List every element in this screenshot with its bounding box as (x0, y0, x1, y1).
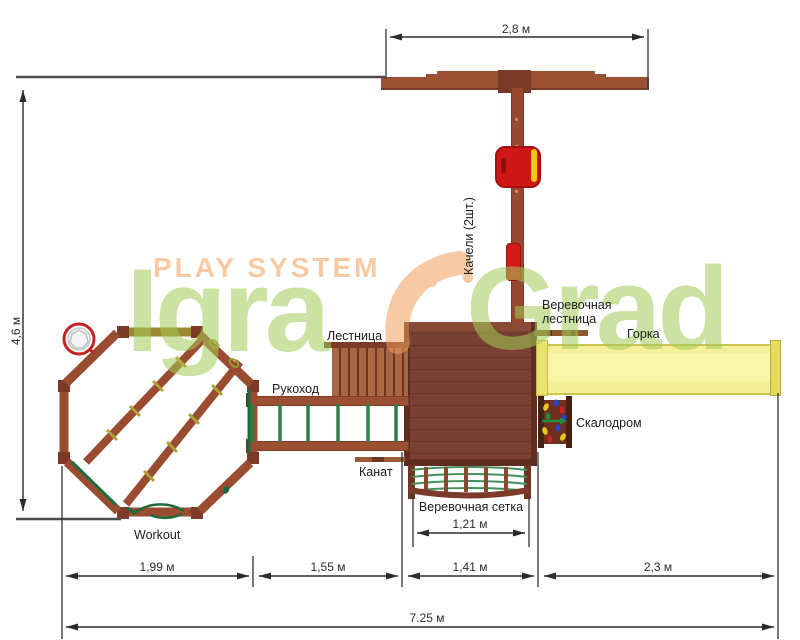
dimension-top-width: 2,8 м (502, 22, 530, 36)
climbing-wall-panel (544, 400, 566, 444)
rope-net-post (408, 465, 415, 499)
label-monkey-bars: Рукоход (272, 382, 319, 396)
swing-beam-step-left (426, 74, 438, 78)
workout-green-details (72, 338, 249, 517)
dimension-segment-1: 1,99 м (140, 560, 175, 574)
label-rope: Канат (359, 465, 393, 479)
dimension-lines (0, 0, 800, 640)
octagon-diagonal-ladder (86, 340, 240, 504)
watermark-play-system: PLAY SYSTEM (153, 252, 381, 284)
label-rope-ladder: Веревочная лестница (542, 299, 622, 326)
rope-ladder-beam (534, 330, 588, 336)
structures-graphics (0, 0, 800, 640)
slide-end-cap (770, 340, 781, 396)
dimension-left-height: 4,6 м (9, 317, 23, 345)
watermark: PLAY SYSTEM Igra Grad (0, 0, 800, 640)
rope-element (355, 457, 405, 462)
slide-entry (536, 340, 548, 396)
swing-hanger (506, 243, 521, 281)
post-bolt (515, 118, 518, 121)
octagon-corner-posts (58, 326, 259, 519)
label-rope-net: Веревочная сетка (419, 500, 523, 514)
ladder-steps (332, 348, 408, 396)
monkey-bars-beam-top (250, 396, 409, 406)
dimension-segment-3: 1,41 м (453, 560, 488, 574)
swing-beam-step-right (594, 74, 606, 78)
rope-net (409, 467, 529, 496)
label-ladder: Лестница (327, 329, 382, 343)
rope-ladder-rung (571, 330, 575, 336)
swing-seat-edge (531, 149, 537, 182)
watermark-igra: Igra (126, 252, 326, 370)
slide-inner-surface (543, 353, 771, 381)
tower-deck (405, 322, 537, 466)
playground-topview-diagram: PLAY SYSTEM Igra Grad (0, 0, 800, 640)
dimension-total-width: 7.25 м (410, 611, 445, 625)
octagon-frame (64, 332, 253, 512)
monkey-bars-stub (246, 393, 253, 407)
monkey-bars-beam-bottom (250, 441, 409, 451)
tower-top-edge (405, 322, 537, 331)
basketball-hoop-icon (64, 324, 94, 354)
monkey-bars-stub (246, 439, 253, 453)
watermark-swoosh-icon (0, 0, 800, 640)
label-swings: Качели (2шт.) (462, 197, 476, 275)
dimension-segment-2: 1,55 м (311, 560, 346, 574)
monkey-bars-rungs (252, 404, 396, 442)
dimension-segment-4: 2,3 м (644, 560, 672, 574)
swing-seat-handle (501, 158, 506, 173)
post-bolt (515, 190, 518, 193)
climbing-wall-rail (566, 396, 572, 448)
tower-bottom-edge (405, 459, 537, 466)
label-workout: Workout (134, 528, 180, 542)
ladder-ticks (107, 357, 222, 481)
swing-post (511, 88, 524, 324)
rope-ladder-rung (548, 330, 552, 336)
rope-net-post (524, 465, 531, 499)
dimension-net-width: 1,21 м (453, 517, 488, 531)
label-slide: Горка (627, 327, 660, 341)
extension-lines-gray (16, 77, 385, 519)
label-climbing-wall: Скалодром (576, 416, 642, 430)
